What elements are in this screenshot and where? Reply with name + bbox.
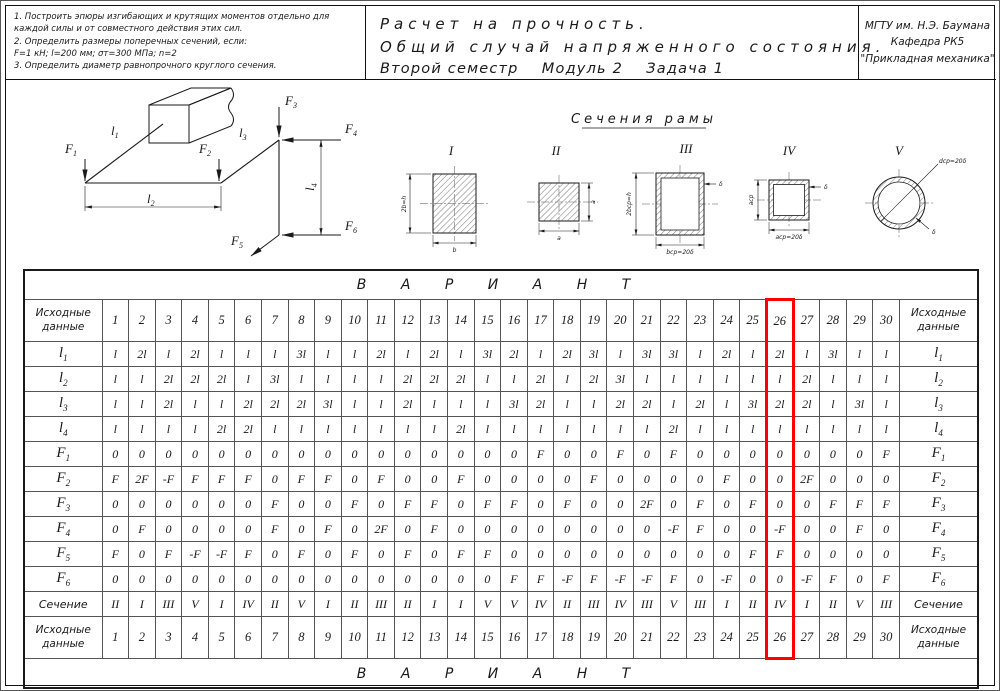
col-number: 28 — [820, 617, 847, 659]
table-cell: 0 — [448, 442, 475, 467]
corner-label-line: данные — [25, 321, 102, 334]
table-cell: l — [766, 367, 793, 392]
table-cell: l — [315, 417, 342, 442]
table-cell: F — [448, 542, 475, 567]
table-cell: l — [208, 392, 235, 417]
section-II-numeral: II — [551, 143, 561, 158]
table-cell: l — [607, 417, 634, 442]
table-cell: II — [341, 592, 368, 617]
table-cell: -F — [713, 567, 740, 592]
table-cell: II — [394, 592, 421, 617]
table-cell: 0 — [474, 567, 501, 592]
row-label: l2 — [900, 367, 978, 392]
table-cell: 0 — [474, 467, 501, 492]
table-cell: 0 — [421, 442, 448, 467]
col-number: 23 — [687, 617, 714, 659]
table-cell: V — [846, 592, 873, 617]
table-cell: 0 — [208, 442, 235, 467]
table-cell: 0 — [208, 492, 235, 517]
table-cell: 2l — [394, 392, 421, 417]
section-I: I 2b=h b — [401, 143, 488, 254]
table-cell: l — [315, 367, 342, 392]
table-cell: 0 — [102, 517, 129, 542]
row-label-symbol: F — [56, 470, 65, 486]
table-cell: l — [102, 342, 129, 367]
col-number: 15 — [474, 617, 501, 659]
row-label-symbol: F — [56, 445, 65, 461]
table-cell: F — [394, 492, 421, 517]
corner-label-line: Исходные — [25, 624, 102, 637]
table-cell: 0 — [660, 542, 687, 567]
table-cell: 0 — [793, 517, 820, 542]
table-cell: 3l — [261, 367, 288, 392]
variant-banner-bottom: В А Р И А Н Т — [24, 659, 978, 689]
table-cell: 0 — [713, 492, 740, 517]
row-label: F6 — [900, 567, 978, 592]
table-cell: l — [288, 367, 315, 392]
table-cell: l — [607, 342, 634, 367]
table-cell: l — [634, 417, 661, 442]
table-cell: F — [660, 442, 687, 467]
table-cell: 0 — [129, 492, 156, 517]
table-cell: F — [687, 517, 714, 542]
col-number: 10 — [341, 300, 368, 342]
table-cell: I — [713, 592, 740, 617]
table-cell: l — [713, 367, 740, 392]
row-label-subscript: 6 — [66, 578, 71, 588]
table-cell: IV — [766, 592, 793, 617]
table-cell: 0 — [102, 492, 129, 517]
table-cell: 0 — [394, 517, 421, 542]
table-cell: F — [660, 567, 687, 592]
table-cell: l — [820, 417, 847, 442]
col-number: 26 — [766, 300, 793, 342]
row-label: Сечение — [900, 592, 978, 617]
row-label: Сечение — [24, 592, 102, 617]
table-cell: F — [261, 517, 288, 542]
org-block: МГТУ им. Н.Э. Баумана Кафедра РК5 "Прикл… — [859, 6, 996, 79]
row-label-subscript: 3 — [941, 503, 946, 513]
table-cell: 3l — [501, 392, 528, 417]
table-cell: 0 — [155, 442, 182, 467]
table-cell: l — [527, 417, 554, 442]
table-cell: 0 — [554, 467, 581, 492]
table-cell: 0 — [129, 442, 156, 467]
table-cell: III — [155, 592, 182, 617]
table-cell: l — [394, 417, 421, 442]
section-IV-dim-height: aср — [748, 194, 755, 205]
col-number: 17 — [527, 617, 554, 659]
table-cell: 2l — [208, 417, 235, 442]
table-cell: 0 — [820, 542, 847, 567]
table-cell: 2l — [155, 367, 182, 392]
table-cell: 0 — [102, 442, 129, 467]
table-cell: l — [288, 417, 315, 442]
table-cell: F — [740, 542, 767, 567]
org-line-2: Кафедра РК5 — [859, 34, 996, 50]
table-cell: 0 — [421, 467, 448, 492]
table-cell: F — [474, 542, 501, 567]
col-number: 29 — [846, 617, 873, 659]
table-cell: 0 — [501, 442, 528, 467]
table-cell: l — [208, 342, 235, 367]
table-cell: l — [474, 392, 501, 417]
table-cell: 2l — [235, 417, 262, 442]
table-cell: 2l — [129, 342, 156, 367]
table-cell: F — [394, 542, 421, 567]
table-cell: 0 — [634, 542, 661, 567]
table-cell: 0 — [315, 492, 342, 517]
table-cell: 0 — [740, 567, 767, 592]
row-label: F1 — [900, 442, 978, 467]
section-V-dim-diameter: dср=20δ — [939, 158, 967, 165]
col-number: 21 — [634, 300, 661, 342]
section-II: II a a — [527, 143, 598, 242]
table-cell: F — [846, 517, 873, 542]
section-IV: IV aср aср=20δ δ — [748, 143, 828, 241]
section-IV-numeral: IV — [782, 143, 797, 158]
table-cell: l — [129, 392, 156, 417]
table-cell: V — [660, 592, 687, 617]
table-cell: 0 — [766, 492, 793, 517]
col-number: 13 — [421, 300, 448, 342]
corner-label: Исходныеданные — [900, 617, 978, 659]
table-cell: 0 — [368, 567, 395, 592]
table-cell: 0 — [315, 442, 342, 467]
table-cell: 0 — [713, 542, 740, 567]
corner-label-line: данные — [900, 321, 977, 334]
table-cell: F — [341, 542, 368, 567]
corner-label-line: Исходные — [900, 624, 977, 637]
table-cell: 0 — [660, 492, 687, 517]
col-number: 28 — [820, 300, 847, 342]
table-cell: l — [315, 342, 342, 367]
table-cell: 0 — [580, 442, 607, 467]
table-cell: -F — [793, 567, 820, 592]
row-label: F2 — [24, 467, 102, 492]
col-number: 3 — [155, 300, 182, 342]
table-cell: -F — [766, 517, 793, 542]
table-cell: 3l — [580, 342, 607, 367]
table-cell: 0 — [607, 542, 634, 567]
table-cell: F — [288, 467, 315, 492]
table-cell: -F — [634, 567, 661, 592]
table-cell: 0 — [261, 542, 288, 567]
worksheet-page: 1. Построить эпюры изгибающих и крутящих… — [0, 0, 1000, 691]
row-label-symbol: F — [56, 545, 65, 561]
row-label-symbol: F — [932, 445, 941, 461]
col-number: 18 — [554, 300, 581, 342]
table-cell: V — [474, 592, 501, 617]
table-cell: 0 — [607, 517, 634, 542]
table-cell: II — [740, 592, 767, 617]
table-cell: 0 — [527, 542, 554, 567]
row-label-subscript: 2 — [938, 378, 943, 388]
col-number: 7 — [261, 617, 288, 659]
table-cell: 0 — [155, 517, 182, 542]
row-label-subscript: 2 — [941, 478, 946, 488]
col-number: 3 — [155, 617, 182, 659]
table-cell: l — [368, 392, 395, 417]
table-cell: 0 — [713, 517, 740, 542]
table-cell: 2l — [208, 367, 235, 392]
force-label-f4: F4 — [344, 121, 357, 138]
table-cell: l — [474, 367, 501, 392]
sections-title: Сечения рамы — [571, 112, 717, 127]
section-I-numeral: I — [448, 143, 454, 158]
row-label: l1 — [900, 342, 978, 367]
table-cell: l — [793, 417, 820, 442]
table-cell: 0 — [793, 542, 820, 567]
corner-label-line: Исходные — [900, 307, 977, 320]
section-I-dim-height: 2b=h — [401, 196, 408, 213]
table-cell: 0 — [766, 442, 793, 467]
col-number: 7 — [261, 300, 288, 342]
table-cell: V — [182, 592, 209, 617]
row-label-symbol: F — [56, 495, 65, 511]
table-cell: l — [873, 367, 900, 392]
row-label-symbol: F — [56, 570, 65, 586]
table-cell: 2l — [182, 342, 209, 367]
section-I-dim-width: b — [453, 247, 457, 254]
col-number: 24 — [713, 300, 740, 342]
table-cell: -F — [208, 542, 235, 567]
table-cell: 2l — [155, 392, 182, 417]
table-cell: 0 — [740, 517, 767, 542]
row-label-symbol: F — [932, 520, 941, 536]
table-cell: 0 — [501, 542, 528, 567]
variant-banner-top: В А Р И А Н Т — [24, 270, 978, 300]
table-cell: 0 — [554, 542, 581, 567]
table-cell: 0 — [102, 567, 129, 592]
table-cell: 3l — [288, 342, 315, 367]
table-cell: F — [873, 442, 900, 467]
table-cell: 2l — [182, 367, 209, 392]
col-number: 6 — [235, 617, 262, 659]
table-cell: F — [740, 492, 767, 517]
table-cell: l — [740, 367, 767, 392]
table-cell: 3l — [846, 392, 873, 417]
task-list: 1. Построить эпюры изгибающих и крутящих… — [6, 6, 366, 79]
table-cell: 0 — [448, 567, 475, 592]
table-cell: 0 — [660, 467, 687, 492]
table-cell: F — [288, 542, 315, 567]
row-label: l3 — [900, 392, 978, 417]
table-cell: 0 — [873, 467, 900, 492]
col-number: 15 — [474, 300, 501, 342]
title-line-1: Расчет на прочность. — [380, 13, 858, 36]
table-cell: F — [820, 492, 847, 517]
col-number: 2 — [129, 300, 156, 342]
row-label-symbol: F — [932, 495, 941, 511]
col-number: 22 — [660, 300, 687, 342]
table-cell: F — [766, 542, 793, 567]
table-cell: 2l — [368, 342, 395, 367]
title-block: Расчет на прочность. Общий случай напряж… — [366, 6, 859, 79]
table-cell: 2l — [501, 342, 528, 367]
table-cell: 0 — [501, 467, 528, 492]
table-cell: F — [607, 442, 634, 467]
table-cell: l — [235, 367, 262, 392]
table-cell: 0 — [394, 467, 421, 492]
col-number: 5 — [208, 617, 235, 659]
table-cell: 0 — [740, 442, 767, 467]
col-number: 10 — [341, 617, 368, 659]
row-label: F2 — [900, 467, 978, 492]
section-III-dim-height: 2bср=h — [626, 192, 633, 216]
table-cell: F — [341, 492, 368, 517]
table-cell: 2l — [634, 392, 661, 417]
row-label-subscript: 3 — [938, 403, 943, 413]
table-cell: III — [687, 592, 714, 617]
table-cell: 0 — [527, 492, 554, 517]
table-cell: II — [102, 592, 129, 617]
table-cell: F — [315, 467, 342, 492]
col-number: 6 — [235, 300, 262, 342]
col-number: 25 — [740, 617, 767, 659]
section-III-dim-wall: δ — [719, 181, 723, 188]
row-label-subscript: 4 — [938, 428, 943, 438]
table-cell: F — [421, 517, 448, 542]
table-cell: III — [634, 592, 661, 617]
table-cell: -F — [155, 467, 182, 492]
row-label: F5 — [24, 542, 102, 567]
table-cell: 0 — [235, 492, 262, 517]
table-cell: 0 — [129, 567, 156, 592]
org-line-3: "Прикладная механика" — [859, 51, 996, 67]
col-number: 2 — [129, 617, 156, 659]
force-arrows — [85, 107, 341, 256]
table-cell: 2l — [660, 417, 687, 442]
table-cell: l — [448, 342, 475, 367]
table-cell: l — [660, 367, 687, 392]
table-cell: IV — [607, 592, 634, 617]
col-number: 4 — [182, 300, 209, 342]
task-1: 1. Построить эпюры изгибающих и крутящих… — [14, 11, 357, 36]
table-cell: 0 — [155, 567, 182, 592]
col-number: 17 — [527, 300, 554, 342]
table-cell: 0 — [687, 467, 714, 492]
row-label-subscript: 2 — [63, 378, 68, 388]
section-II-dim-bottom: a — [557, 235, 561, 242]
col-number: 24 — [713, 617, 740, 659]
table-cell: l — [394, 342, 421, 367]
table-cell: l — [713, 417, 740, 442]
table-cell: F — [527, 442, 554, 467]
table-cell: F — [261, 492, 288, 517]
corner-label-line: данные — [25, 638, 102, 651]
task-2: 2. Определить размеры поперечных сечений… — [14, 36, 357, 48]
table-cell: l — [554, 392, 581, 417]
force-label-f2: F2 — [198, 141, 211, 158]
row-label-subscript: 6 — [941, 578, 946, 588]
table-cell: 0 — [182, 492, 209, 517]
variant-table: В А Р И А Н ТИсходныеданные1234567891011… — [23, 269, 979, 689]
table-cell: 2l — [394, 367, 421, 392]
table-cell: F — [182, 467, 209, 492]
table-cell: F — [554, 492, 581, 517]
table-cell: I — [315, 592, 342, 617]
length-label-l3: l3 — [239, 125, 247, 142]
table-cell: V — [501, 592, 528, 617]
header-strip: 1. Построить эпюры изгибающих и крутящих… — [6, 6, 996, 80]
table-cell: 0 — [288, 442, 315, 467]
table-cell: l — [341, 392, 368, 417]
table-cell: l — [873, 342, 900, 367]
row-label: F5 — [900, 542, 978, 567]
table-cell: 0 — [261, 567, 288, 592]
table-cell: 2l — [421, 367, 448, 392]
force-label-f5: F5 — [230, 233, 243, 250]
row-label: l4 — [24, 417, 102, 442]
row-label: F1 — [24, 442, 102, 467]
table-cell: l — [687, 417, 714, 442]
col-number: 19 — [580, 617, 607, 659]
table-cell: l — [793, 342, 820, 367]
table-cell: l — [155, 342, 182, 367]
table-cell: IV — [527, 592, 554, 617]
table-cell: 3l — [474, 342, 501, 367]
table-cell: l — [846, 342, 873, 367]
title-line-3: Второй семестр Модуль 2 Задача 1 — [380, 58, 858, 81]
table-cell: F — [687, 492, 714, 517]
table-cell: l — [129, 367, 156, 392]
table-cell: 0 — [208, 567, 235, 592]
col-number: 20 — [607, 300, 634, 342]
section-V-dim-wall: δ — [932, 229, 936, 236]
table-cell: 0 — [421, 567, 448, 592]
table-cell: 0 — [315, 542, 342, 567]
table-cell: 2l — [687, 392, 714, 417]
table-cell: l — [580, 392, 607, 417]
force-arrow-f5 — [251, 235, 279, 256]
table-cell: l — [102, 367, 129, 392]
table-cell: 0 — [580, 542, 607, 567]
table-cell: l — [261, 342, 288, 367]
col-number: 8 — [288, 300, 315, 342]
table-cell: l — [660, 392, 687, 417]
col-number: 9 — [315, 300, 342, 342]
table-cell: 2l — [527, 367, 554, 392]
col-number: 30 — [873, 300, 900, 342]
table-cell: l — [235, 342, 262, 367]
table-cell: 0 — [235, 517, 262, 542]
table-cell: 0 — [261, 442, 288, 467]
table-cell: l — [554, 417, 581, 442]
row-label-subscript: 1 — [63, 353, 68, 363]
table-cell: I — [208, 592, 235, 617]
col-number: 1 — [102, 300, 129, 342]
table-cell: l — [341, 367, 368, 392]
sections-panel: Сечения рамы I 2b=h b II a — [386, 93, 991, 265]
table-cell: 2l — [580, 367, 607, 392]
table-cell: l — [102, 417, 129, 442]
table-cell: l — [820, 392, 847, 417]
table-cell: 2l — [421, 342, 448, 367]
table-cell: l — [554, 367, 581, 392]
table-cell: 0 — [740, 467, 767, 492]
table-cell: 0 — [820, 442, 847, 467]
table-cell: 0 — [634, 442, 661, 467]
row-label: F3 — [24, 492, 102, 517]
length-label-l4: l4 — [302, 183, 319, 191]
row-label: F3 — [900, 492, 978, 517]
table-cell: F — [580, 567, 607, 592]
table-cell: 0 — [527, 467, 554, 492]
table-cell: 0 — [288, 567, 315, 592]
table-cell: F — [315, 517, 342, 542]
corner-label: Исходныеданные — [900, 300, 978, 342]
